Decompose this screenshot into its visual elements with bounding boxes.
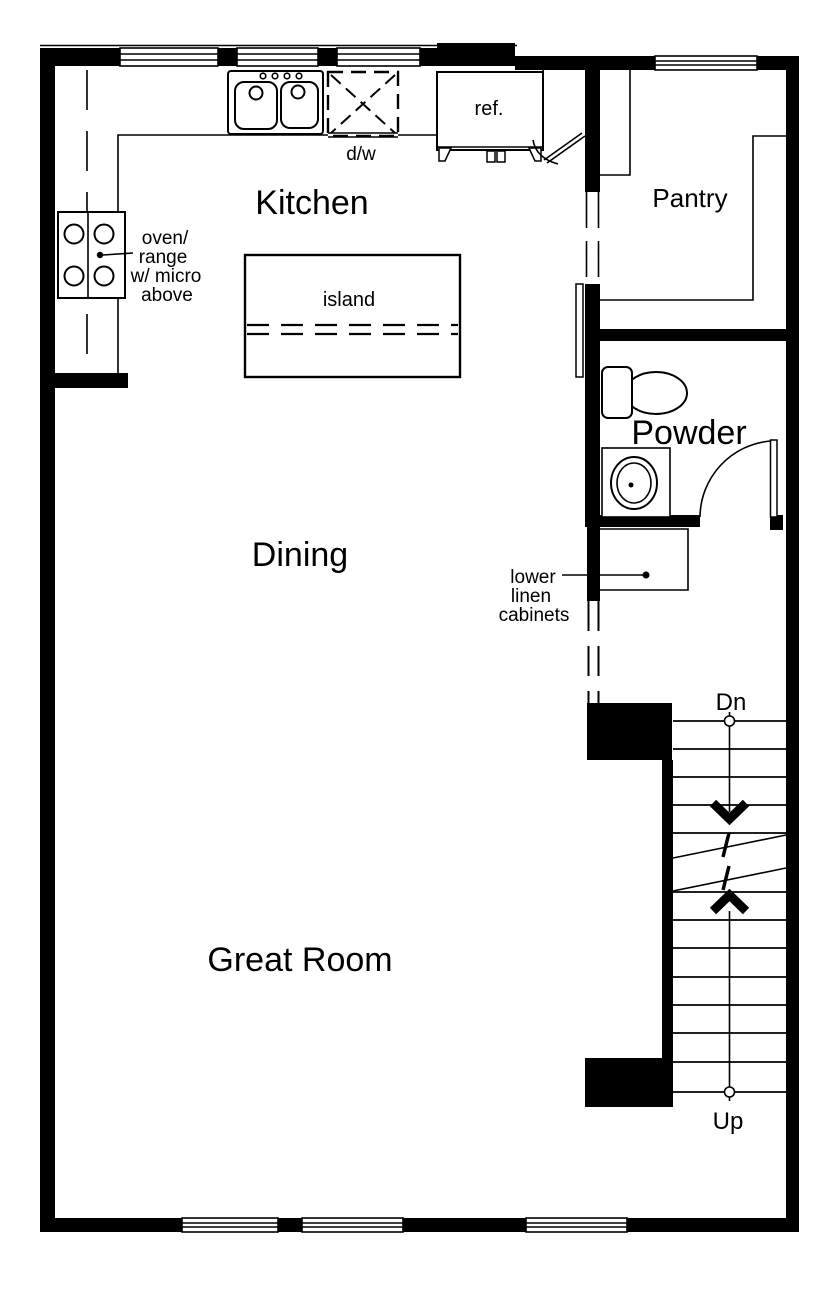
svg-text:range: range bbox=[139, 247, 188, 268]
kitchen-sink bbox=[228, 71, 323, 134]
window bbox=[182, 1218, 278, 1232]
dishwasher: d/w bbox=[328, 72, 398, 165]
wall-top-block bbox=[437, 43, 515, 66]
floor-plan-drawing: d/w ref. bbox=[0, 0, 840, 1302]
window bbox=[302, 1218, 403, 1232]
wall-top-pier bbox=[318, 48, 337, 66]
window-pantry bbox=[655, 56, 757, 70]
toilet bbox=[602, 367, 687, 418]
stair-break-lines bbox=[673, 833, 786, 891]
kitchen: d/w ref. bbox=[48, 67, 585, 388]
stair-direction-line bbox=[713, 712, 746, 1101]
wall-top-corner bbox=[40, 48, 120, 66]
wall-left bbox=[40, 48, 55, 1232]
wall-top-right-corner bbox=[757, 56, 799, 70]
ref-foot bbox=[439, 148, 451, 161]
refrigerator-label: ref. bbox=[475, 98, 504, 120]
svg-text:oven/: oven/ bbox=[142, 228, 189, 249]
svg-text:lower: lower bbox=[510, 567, 556, 588]
pantry-shelf bbox=[600, 70, 630, 175]
stair-wall-block-bottom bbox=[585, 1058, 673, 1107]
arrow-up-icon bbox=[713, 895, 746, 911]
wall-powder-left bbox=[585, 341, 600, 515]
great-room-label: Great Room bbox=[207, 941, 392, 979]
door-leaf bbox=[771, 440, 778, 517]
wall-right bbox=[786, 56, 799, 1232]
stair-wall-left bbox=[662, 760, 673, 1058]
kitchen-island: island bbox=[245, 255, 460, 377]
pantry-sliding-door-leaf bbox=[576, 284, 583, 377]
window bbox=[526, 1218, 627, 1232]
pantry: Pantry bbox=[600, 70, 786, 300]
exterior-walls bbox=[40, 43, 799, 1232]
dining-label: Dining bbox=[252, 536, 348, 574]
wall-bottom bbox=[40, 1218, 799, 1232]
wall-kitchen-pantry bbox=[585, 284, 600, 329]
stairs-up-label: Up bbox=[713, 1108, 744, 1135]
faucet-dot bbox=[629, 483, 634, 488]
wall-linen bbox=[587, 527, 600, 601]
stair-wall-block-top bbox=[587, 703, 672, 760]
powder-label: Powder bbox=[631, 414, 746, 452]
floor-plan-page: d/w ref. bbox=[0, 0, 840, 1302]
door-swing-arc bbox=[700, 441, 771, 517]
wall-pantry-powder bbox=[585, 329, 786, 341]
svg-text:cabinets: cabinets bbox=[499, 605, 570, 626]
powder-room: Powder bbox=[602, 367, 777, 517]
wall-top-segment bbox=[420, 48, 437, 66]
wall-stub-left bbox=[48, 373, 128, 388]
svg-text:linen: linen bbox=[511, 586, 551, 607]
leader-dot bbox=[97, 252, 103, 258]
leader-dot bbox=[643, 572, 650, 579]
vanity-sink bbox=[602, 448, 670, 517]
stair-start-circle bbox=[725, 716, 735, 726]
pantry-label: Pantry bbox=[652, 183, 727, 213]
cabinet-outline bbox=[600, 529, 688, 590]
wall-top-pier bbox=[218, 48, 237, 66]
island-label: island bbox=[323, 289, 375, 311]
wall-kitchen-pantry bbox=[585, 56, 600, 192]
stairs-down-label: Dn bbox=[716, 689, 747, 716]
window bbox=[337, 48, 420, 66]
dishwasher-label: d/w bbox=[346, 144, 376, 165]
staircase: Dn Up bbox=[585, 689, 786, 1135]
kitchen-label: Kitchen bbox=[255, 184, 368, 222]
svg-text:w/ micro: w/ micro bbox=[130, 266, 202, 287]
window bbox=[237, 48, 318, 66]
svg-text:above: above bbox=[141, 285, 193, 306]
window bbox=[120, 48, 218, 66]
refrigerator: ref. bbox=[437, 72, 543, 162]
pantry-shelf bbox=[600, 136, 786, 300]
stair-end-circle bbox=[725, 1087, 735, 1097]
windows bbox=[120, 48, 757, 1232]
